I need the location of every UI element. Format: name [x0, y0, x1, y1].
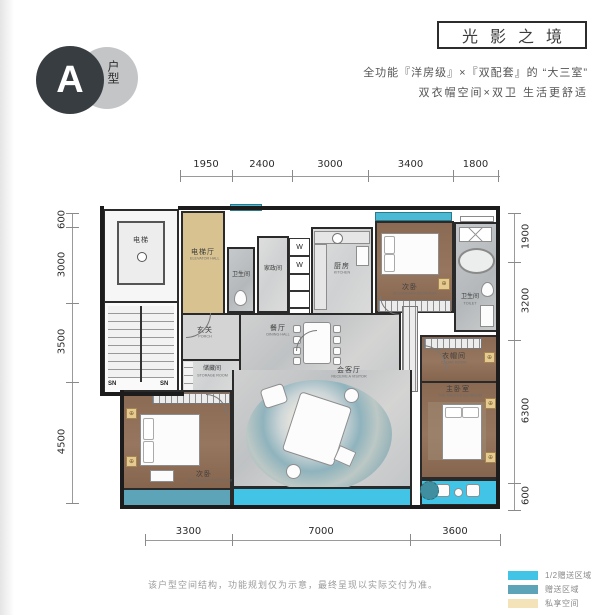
room-laundry-cn: 家政间 — [264, 266, 282, 272]
dim-top-line — [180, 176, 500, 177]
living-side-table — [344, 388, 359, 403]
bedroom2-nightstand: ⊕ — [438, 278, 450, 290]
dim-tick — [66, 503, 79, 504]
floorplan-poster: 户型 A 光影之境 全功能『洋房级』×『双配套』的 “大三室” 双衣帽空间×双卫… — [0, 0, 600, 615]
appliance-washer1: W — [289, 238, 310, 256]
balcony-table — [454, 488, 463, 497]
dim-bottom-1: 7000 — [232, 526, 410, 537]
dining-chair — [293, 357, 301, 365]
living-pouf — [286, 464, 301, 479]
room-elevator-label: 电梯 — [121, 236, 161, 245]
dim-bottom-2: 3600 — [410, 526, 500, 537]
elevator-pulley-icon — [137, 252, 147, 262]
living-plant — [420, 481, 439, 500]
stairs-left — [108, 306, 140, 378]
dim-tick — [368, 170, 369, 182]
room-elevator-hall-en: ELEVATOR HALL — [190, 257, 216, 262]
dim-left-line — [72, 213, 73, 503]
room-elevator-hall-label: 电梯厅 ELEVATOR HALL — [182, 248, 224, 265]
dim-left-2: 3500 — [57, 322, 68, 362]
living-balcony — [232, 487, 412, 507]
legend-swatch-half-gift — [508, 571, 538, 580]
dim-tick — [508, 262, 521, 263]
kitchen-sink — [332, 233, 343, 244]
dim-tick — [508, 213, 521, 214]
room-dining-cn: 餐厅 — [270, 325, 286, 332]
dim-top-1: 2400 — [232, 159, 292, 170]
bedroom3-pillow1 — [143, 418, 154, 440]
wall-left-annex — [100, 206, 104, 396]
dim-tick — [66, 213, 79, 214]
bath2-toilet — [481, 282, 494, 297]
room-kitchen-label: 厨房 KITCHEN — [316, 262, 368, 279]
dim-tick — [292, 170, 293, 182]
door-mark-sn2: SN — [160, 381, 168, 387]
title-box: 光影之境 — [437, 21, 587, 49]
room-laundry — [257, 236, 289, 313]
legend-swatch-private — [508, 599, 538, 608]
dim-bottom-line — [145, 540, 500, 541]
appliance-washer2: W — [289, 256, 310, 274]
master-pillow2 — [462, 407, 479, 418]
cloak-stand: ⊕ — [484, 352, 495, 363]
room-storage-cn: 储藏间 — [203, 366, 221, 372]
room-bedroom2-cn: 次卧 — [402, 284, 418, 291]
dim-tick — [508, 483, 521, 484]
dining-chair — [333, 336, 341, 344]
wall-right — [496, 206, 500, 509]
subtitle-line2: 双衣帽空间×双卫 生活更舒适 — [270, 84, 588, 100]
badge-letter-circle: A — [36, 46, 104, 114]
dining-chair — [333, 347, 341, 355]
dim-left-1: 3000 — [57, 245, 68, 285]
wall-left-bottom — [120, 390, 124, 509]
room-bath2-label: 卫生间 TOILET — [458, 294, 482, 310]
room-cloak-cn: 衣帽间 — [442, 353, 466, 360]
legend-label-private: 私享空间 — [545, 598, 579, 609]
wall-annex-bottom — [100, 392, 184, 396]
room-dining-label: 餐厅 DINING HALL — [256, 324, 300, 341]
dim-tick — [232, 170, 233, 182]
dim-top-4: 1800 — [453, 159, 498, 170]
room-living-en: RECEIVE A VISITOR — [331, 375, 367, 380]
master-pillow1 — [445, 407, 462, 418]
appliance-cabinet1 — [289, 274, 310, 291]
dim-tick — [500, 534, 501, 546]
subtitle-line1: 全功能『洋房级』×『双配套』的 “大三室” — [270, 64, 588, 80]
bedroom3-vanity — [150, 470, 174, 482]
dim-top-3: 3400 — [368, 159, 453, 170]
toilet1 — [234, 290, 247, 306]
badge-type-text: 户型 — [105, 60, 120, 84]
badge-letter: A — [56, 59, 83, 102]
room-bath2-en: TOILET — [463, 302, 478, 307]
room-dining-en: DINING HALL — [264, 333, 291, 338]
stairs-right — [142, 306, 174, 378]
room-storage-en: STORAGE ROOM — [197, 374, 227, 379]
bedroom2-bay-window — [375, 212, 452, 221]
page-edge-shade — [0, 0, 14, 615]
bedroom2-pillow1 — [384, 236, 395, 254]
room-storage-label: 储藏间 STORAGE ROOM — [188, 366, 236, 382]
dim-tick — [66, 227, 79, 228]
stairs-divider — [140, 306, 142, 382]
bedroom3-nightstand1: ⊕ — [126, 408, 137, 419]
room-master-en: THE MASTER BEDROOM — [438, 394, 478, 399]
bedroom3-nightstand2: ⊕ — [126, 456, 137, 467]
wall-top — [178, 206, 500, 210]
washer2-label: W — [296, 262, 303, 269]
dim-tick — [498, 170, 499, 182]
room-bath2-cn: 卫生间 — [461, 294, 479, 300]
dim-left-0: 600 — [57, 200, 68, 240]
dim-tick — [508, 340, 521, 341]
bedroom2-pillow2 — [384, 254, 395, 272]
door-mark-sn1: SN — [108, 381, 116, 387]
legend-label-gift: 赠送区域 — [545, 584, 579, 595]
bath2-cabinet — [480, 305, 494, 327]
dim-tick — [453, 170, 454, 182]
dim-top-0: 1950 — [180, 159, 232, 170]
room-laundry-label: 家政间 — [257, 266, 289, 274]
washer1-label: W — [296, 244, 303, 251]
wall-bottom — [120, 505, 500, 509]
appliance-cabinet2 — [289, 291, 310, 308]
room-bedroom3-en: SECONDARY BEDROOM — [188, 479, 220, 484]
room-master-cn: 主卧室 — [446, 386, 470, 393]
badge-type-label: 户型 — [105, 60, 119, 88]
dim-right-3: 600 — [521, 476, 532, 516]
dim-top-2: 3000 — [292, 159, 368, 170]
room-kitchen-cn: 厨房 — [334, 263, 350, 270]
dim-right-1: 3200 — [521, 281, 532, 321]
dim-tick — [180, 170, 181, 182]
legend-swatch-gift — [508, 585, 538, 594]
dim-tick — [66, 382, 79, 383]
dim-right-0: 1900 — [521, 217, 532, 257]
legend-label-half-gift: 1/2赠送区域 — [545, 570, 592, 581]
dining-chair — [333, 357, 341, 365]
room-bath1-label: 卫生间 — [227, 272, 255, 280]
legend-row-private: 私享空间 — [508, 598, 579, 609]
dim-tick — [508, 510, 521, 511]
legend-row-half-gift: 1/2赠送区域 — [508, 570, 592, 581]
dining-chair — [333, 325, 341, 333]
bath2-vanity-top — [459, 227, 492, 242]
legend-row-gift: 赠送区域 — [508, 584, 579, 595]
room-bedroom3-cn: 次卧 — [196, 471, 212, 478]
room-bedroom3-label: 次卧 SECONDARY BEDROOM — [178, 470, 230, 487]
room-elevator-hall-cn: 电梯厅 — [191, 249, 215, 256]
disclaimer-text: 该户型空间结构，功能规划仅为示意，最终呈现以实际交付为准。 — [148, 578, 478, 591]
window-bath2 — [460, 216, 494, 222]
dim-left-3: 4500 — [57, 422, 68, 462]
room-living-cn: 会客厅 — [337, 367, 361, 374]
dim-tick — [66, 303, 79, 304]
dim-right-line — [514, 213, 515, 510]
room-elevator-cn: 电梯 — [133, 237, 149, 244]
page-title: 光影之境 — [450, 23, 574, 47]
bath2-tub — [458, 248, 495, 274]
bedroom3-pillow2 — [143, 441, 154, 463]
balcony-chair2 — [466, 484, 480, 497]
dim-bottom-0: 3300 — [145, 526, 232, 537]
room-kitchen-en: KITCHEN — [326, 271, 358, 276]
room-master-label: 主卧室 THE MASTER BEDROOM — [426, 385, 490, 402]
room-bath1-cn: 卫生间 — [232, 272, 250, 278]
room-living-label: 会客厅 RECEIVE A VISITOR — [320, 366, 378, 383]
master-nightstand2: ⊕ — [485, 452, 496, 463]
dim-right-2: 6300 — [521, 391, 532, 431]
